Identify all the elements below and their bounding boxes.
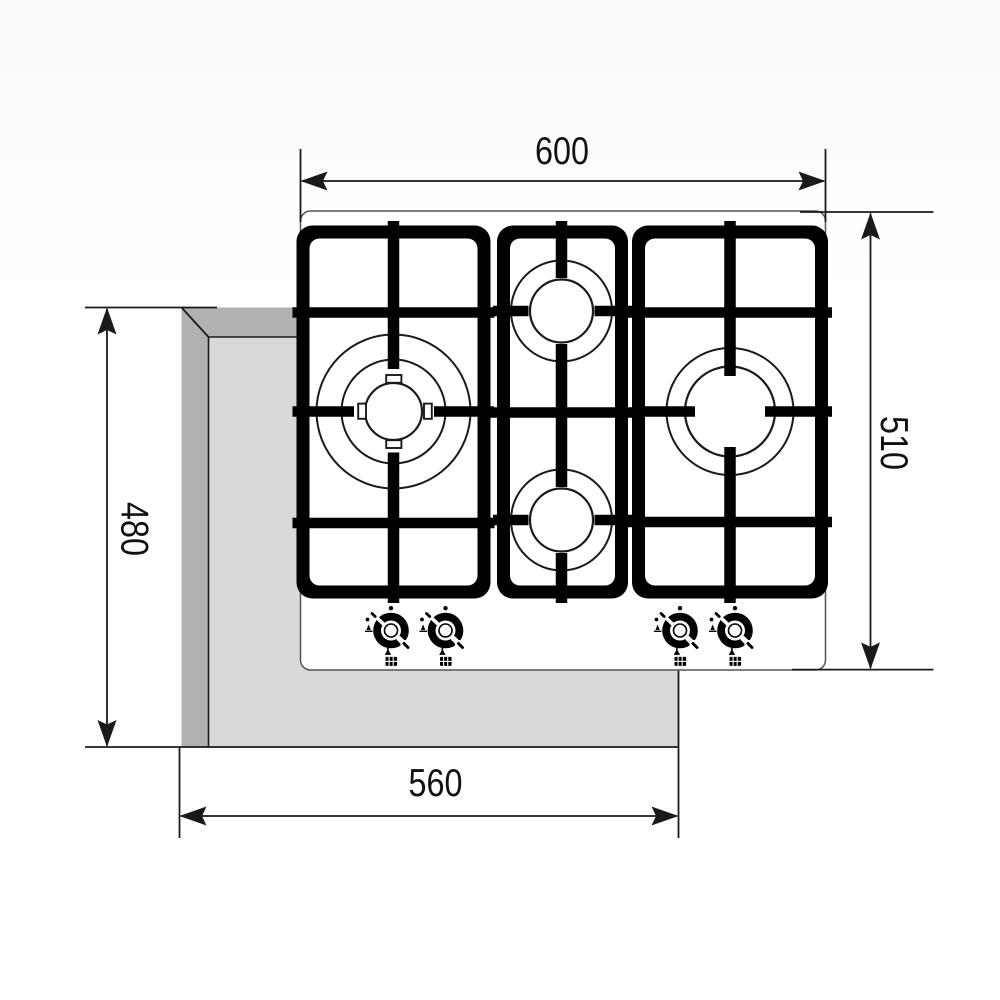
svg-text:560: 560 — [409, 762, 463, 805]
svg-text:510: 510 — [872, 416, 915, 470]
svg-text:480: 480 — [113, 502, 156, 556]
svg-text:600: 600 — [535, 130, 589, 173]
